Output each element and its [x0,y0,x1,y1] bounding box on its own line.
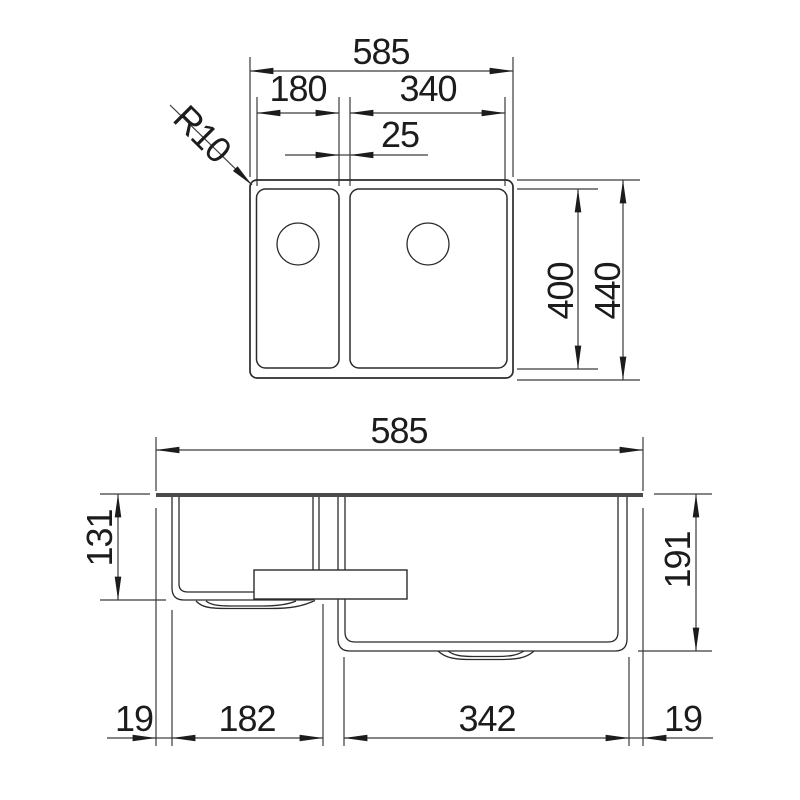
large-bowl-drain-hole [407,223,449,265]
dim-label-large-bowl-base: 342 [458,698,515,739]
large-bowl-drain-recess [438,651,534,660]
small-bowl-drain-recess-inner [206,601,296,606]
waste-fitting-box [254,570,407,599]
dim-label-large-bowl-width: 340 [399,68,456,109]
dim-label-overall-width-top: 585 [352,31,409,72]
sink-outer-outline [250,180,513,378]
dim-label-small-bowl-width: 180 [269,68,326,109]
dim-label-overall-length: 440 [587,262,628,319]
dim-label-left-rim-offset: 19 [115,698,153,739]
technical-drawing-canvas: 585 180 340 25 R10 400 440 [0,0,800,800]
large-bowl-drain-recess-inner [448,651,524,657]
dim-label-corner-radius: R10 [166,97,240,171]
dim-label-right-rim-offset: 19 [664,698,702,739]
dim-label-bowl-gap: 25 [381,114,419,155]
side-view: 585 131 191 19 182 342 19 [79,410,713,746]
large-bowl-outline [350,189,507,368]
small-bowl-outline [257,189,340,368]
dim-label-large-bowl-depth: 191 [657,531,698,588]
dim-label-small-bowl-base: 182 [218,698,275,739]
dim-label-small-bowl-depth: 131 [79,509,120,566]
dim-label-overall-width-side: 585 [370,410,427,451]
small-bowl-drain-hole [277,223,319,265]
sink-dimension-drawing: 585 180 340 25 R10 400 440 [0,0,800,800]
top-view-sink-outline [250,180,513,378]
sink-rim-section [156,493,643,497]
top-view: 585 180 340 25 R10 400 440 [166,31,640,380]
side-view-sink-section [156,493,643,660]
dim-label-bowl-length: 400 [540,262,581,319]
